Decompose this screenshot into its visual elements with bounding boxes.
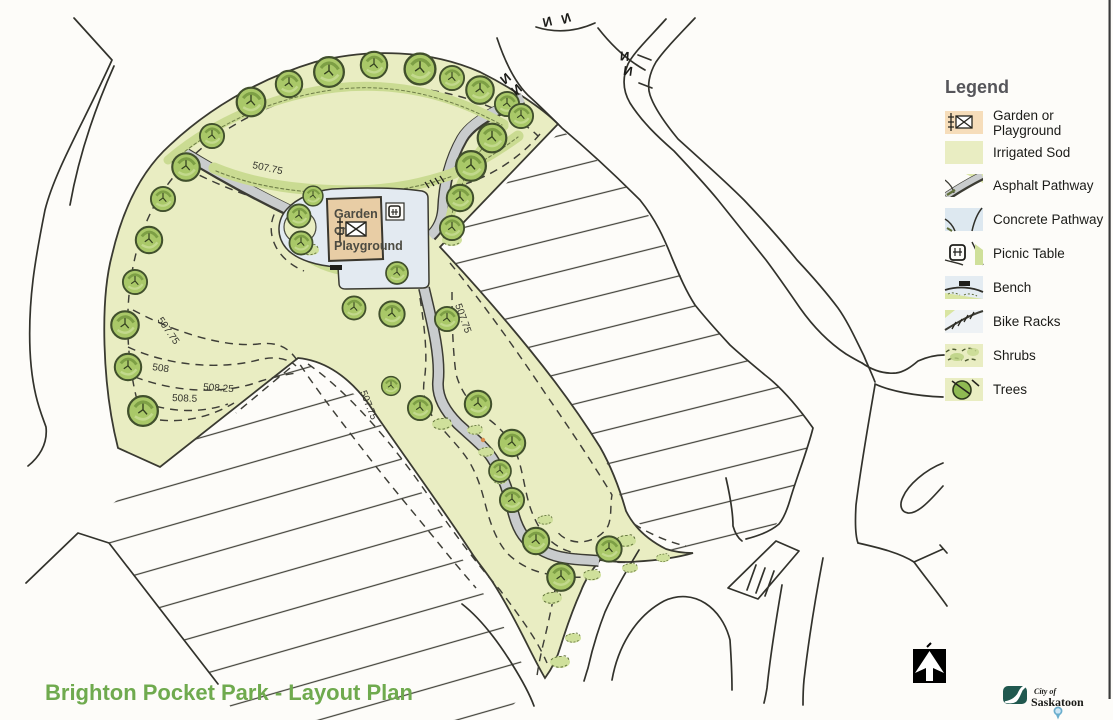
svg-text:N: N bbox=[619, 48, 629, 64]
svg-text:Garden: Garden bbox=[334, 207, 378, 221]
svg-text:Irrigated Sod: Irrigated Sod bbox=[993, 145, 1070, 160]
svg-text:or: or bbox=[334, 223, 347, 237]
svg-text:Shrubs: Shrubs bbox=[993, 348, 1036, 363]
svg-text:Picnic Table: Picnic Table bbox=[993, 246, 1065, 261]
svg-text:Bench: Bench bbox=[993, 280, 1031, 295]
svg-text:Playground: Playground bbox=[993, 123, 1061, 138]
svg-text:Trees: Trees bbox=[993, 382, 1027, 397]
svg-text:Brighton Pocket Park - Layout: Brighton Pocket Park - Layout Plan bbox=[45, 680, 413, 705]
svg-text:508.25: 508.25 bbox=[203, 382, 235, 395]
svg-text:Garden or: Garden or bbox=[993, 108, 1054, 123]
svg-text:508.5: 508.5 bbox=[172, 393, 198, 405]
svg-text:Legend: Legend bbox=[945, 77, 1009, 97]
svg-text:Playground: Playground bbox=[334, 239, 403, 253]
svg-text:Concrete Pathway: Concrete Pathway bbox=[993, 212, 1104, 227]
svg-text:Bike Racks: Bike Racks bbox=[993, 314, 1061, 329]
svg-text:Asphalt Pathway: Asphalt Pathway bbox=[993, 178, 1094, 193]
